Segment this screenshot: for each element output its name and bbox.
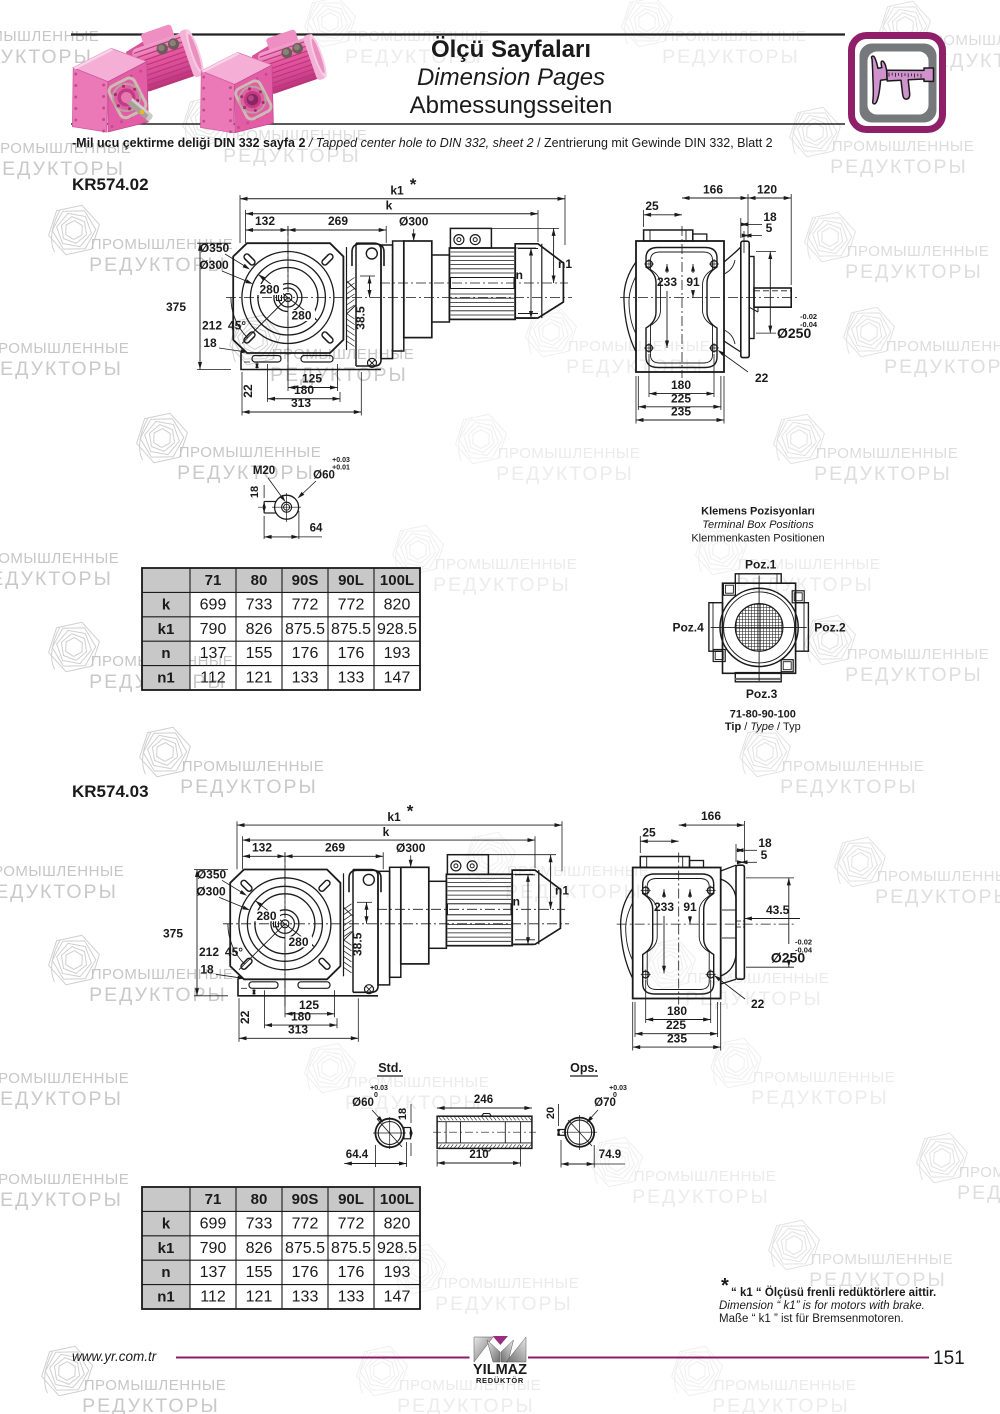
svg-text:ПРОМЫШЛЕННЫЕ: ПРОМЫШЛЕННЫЕ xyxy=(714,1377,856,1394)
svg-text:Poz.4: Poz.4 xyxy=(672,621,704,635)
svg-text:KR574.03: KR574.03 xyxy=(72,782,149,801)
svg-text:5: 5 xyxy=(766,221,773,235)
svg-text:5: 5 xyxy=(761,848,768,862)
svg-text:n1: n1 xyxy=(157,1289,175,1306)
svg-text:120: 120 xyxy=(757,183,777,197)
svg-text:РЕДУКТОРЫ: РЕДУКТОРЫ xyxy=(780,776,918,798)
svg-text:РЕДУКТОРЫ: РЕДУКТОРЫ xyxy=(0,358,123,380)
svg-text:Dimension Pages: Dimension Pages xyxy=(417,64,605,91)
svg-text:РЕДУКТОРЫ: РЕДУКТОРЫ xyxy=(435,1293,573,1315)
svg-text:Abmessungsseiten: Abmessungsseiten xyxy=(410,92,613,119)
svg-text:РЕДУКТОРЫ: РЕДУКТОРЫ xyxy=(632,1186,770,1208)
svg-text:166: 166 xyxy=(703,183,723,197)
svg-text:ПРОМЫШЛЕННЫЕ: ПРОМЫШЛЕННЫЕ xyxy=(782,758,924,775)
svg-text:Maße “ k1 ” ist für Bremsenmot: Maße “ k1 ” ist für Bremsenmotoren. xyxy=(719,1313,904,1325)
svg-text:100L: 100L xyxy=(380,572,414,589)
svg-text:18: 18 xyxy=(249,486,261,498)
svg-text:147: 147 xyxy=(384,1289,411,1306)
svg-text:n: n xyxy=(161,645,170,662)
svg-text:176: 176 xyxy=(338,1264,365,1281)
svg-text:ПРОМЫШЛЕННЫЕ: ПРОМЫШЛЕННЫЕ xyxy=(832,138,974,155)
svg-text:166: 166 xyxy=(701,809,721,823)
svg-text:43.5: 43.5 xyxy=(766,903,790,917)
svg-text:РЕДУКТОРЫ: РЕДУКТОРЫ xyxy=(0,1088,123,1110)
svg-text:РЕДУКТОРЫ: РЕДУКТОРЫ xyxy=(875,886,1000,908)
svg-text:Ø250: Ø250 xyxy=(771,950,805,966)
svg-text:РЕДУКТОРЫ: РЕДУКТОРЫ xyxy=(712,1395,850,1414)
svg-text:699: 699 xyxy=(200,1215,227,1232)
svg-text:ПРОМЫШЛЕННЫЕ: ПРОМЫШЛЕННЫЕ xyxy=(179,444,321,461)
svg-text:ПРОМЫШЛЕННЫЕ: ПРОМЫШЛЕННЫЕ xyxy=(0,1171,129,1188)
svg-text:РЕДУКТОРЫ: РЕДУКТОРЫ xyxy=(0,568,113,590)
svg-text:133: 133 xyxy=(338,1289,365,1306)
svg-text:Klemens Pozisyonları: Klemens Pozisyonları xyxy=(701,505,815,517)
svg-text:772: 772 xyxy=(292,1215,319,1232)
svg-text:193: 193 xyxy=(384,645,411,662)
svg-text:ПРОМЫШЛЕННЫЕ: ПРОМЫШЛЕННЫЕ xyxy=(437,1275,579,1292)
svg-text:ПРОМЫШЛЕННЫЕ: ПРОМЫШЛЕННЫЕ xyxy=(498,445,640,462)
svg-text:22: 22 xyxy=(755,371,769,385)
svg-text:РЕДУКТОРЫ: РЕДУКТОРЫ xyxy=(736,574,874,596)
svg-text:KR574.02: KR574.02 xyxy=(72,175,149,194)
svg-text:*: * xyxy=(721,1275,729,1297)
svg-text:90L: 90L xyxy=(338,572,364,589)
svg-text:РЕДУКТОРЫ: РЕДУКТОРЫ xyxy=(845,664,983,686)
svg-text:+0.03: +0.03 xyxy=(332,457,350,464)
svg-text:ПРОМЫШЛЕННЫЕ: ПРОМЫШЛЕННЫЕ xyxy=(0,28,99,45)
svg-text:Ø250: Ø250 xyxy=(777,325,811,341)
svg-text:+0.03: +0.03 xyxy=(370,1085,388,1092)
svg-text:Tip / Type / Typ: Tip / Type / Typ xyxy=(725,721,801,733)
svg-text:155: 155 xyxy=(246,1264,273,1281)
svg-text:Ölçü Sayfaları: Ölçü Sayfaları xyxy=(431,36,591,63)
svg-text:Poz.1: Poz.1 xyxy=(745,557,777,571)
svg-text:235: 235 xyxy=(671,405,691,419)
svg-text:Ø60: Ø60 xyxy=(352,1097,374,1109)
svg-text:РЕДУКТОРЫ: РЕДУКТОРЫ xyxy=(662,46,800,68)
svg-text:n: n xyxy=(161,1264,170,1281)
svg-text:ПРОМЫШЛЕННЫЕ: ПРОМЫШЛЕННЫЕ xyxy=(435,556,577,573)
svg-text:151: 151 xyxy=(933,1348,965,1369)
svg-text:РЕДУКТОРЫ: РЕДУКТОРЫ xyxy=(505,881,643,903)
svg-text:k1: k1 xyxy=(158,1240,175,1257)
svg-text:90S: 90S xyxy=(292,572,319,589)
svg-text:ПРОМЫШЛЕННЫЕ: ПРОМЫШЛЕННЫЕ xyxy=(0,863,124,880)
svg-text:121: 121 xyxy=(246,1289,273,1306)
svg-text:РЕДУКТОРЫ: РЕДУКТОРЫ xyxy=(830,156,968,178)
svg-text:772: 772 xyxy=(292,596,319,613)
svg-text:180: 180 xyxy=(671,378,691,392)
svg-text:875.5: 875.5 xyxy=(285,1240,325,1257)
svg-text:ПРОМЫШЛЕННЫЕ: ПРОМЫШЛЕННЫЕ xyxy=(84,1377,226,1394)
svg-text:Klemmenkasten Positionen: Klemmenkasten Positionen xyxy=(691,533,824,545)
svg-text:+0.03: +0.03 xyxy=(609,1085,627,1092)
svg-text:20: 20 xyxy=(545,1107,557,1119)
svg-text:225: 225 xyxy=(666,1018,686,1032)
svg-text:176: 176 xyxy=(338,645,365,662)
svg-text:ПРОМЫШЛЕННЫЕ: ПРОМЫШЛЕННЫЕ xyxy=(347,1074,489,1091)
svg-text:ПРОМЫШЛЕННЫЕ: ПРОМЫШЛЕННЫЕ xyxy=(847,646,989,663)
svg-text:112: 112 xyxy=(200,670,226,687)
svg-text:176: 176 xyxy=(292,1264,319,1281)
svg-text:Terminal Box Positions: Terminal Box Positions xyxy=(702,519,814,531)
svg-text:71: 71 xyxy=(205,572,222,589)
svg-text:ПРОМЫШЛЕННЫЕ: ПРОМЫШЛЕННЫЕ xyxy=(816,445,958,462)
svg-text:ПРОМЫШЛЕННЫЕ: ПРОМЫШЛЕННЫЕ xyxy=(634,1168,776,1185)
svg-text:25: 25 xyxy=(645,199,659,213)
svg-text:k: k xyxy=(162,596,171,613)
svg-text:699: 699 xyxy=(200,596,227,613)
svg-text:РЕДУКТОРЫ: РЕДУКТОРЫ xyxy=(0,881,118,903)
svg-text:РЕДУКТОРЫ: РЕДУКТОРЫ xyxy=(0,1189,123,1211)
svg-text:18: 18 xyxy=(397,1108,409,1120)
svg-text:820: 820 xyxy=(384,596,411,613)
svg-text:71: 71 xyxy=(205,1191,222,1208)
svg-text:180: 180 xyxy=(667,1004,687,1018)
svg-text:233: 233 xyxy=(657,275,677,289)
svg-text:790: 790 xyxy=(200,621,227,638)
svg-text:225: 225 xyxy=(671,392,691,406)
svg-text:790: 790 xyxy=(200,1240,227,1257)
svg-text:ПРОМЫШЛЕННЫЕ: ПРОМЫШЛЕННЫЕ xyxy=(0,1070,129,1087)
svg-text:112: 112 xyxy=(200,1289,226,1306)
svg-text:176: 176 xyxy=(292,645,319,662)
svg-text:137: 137 xyxy=(200,645,227,662)
svg-text:ПРОМЫШЛЕННЫЕ: ПРОМЫШЛЕННЫЕ xyxy=(959,1164,1000,1181)
svg-text:www.yr.com.tr: www.yr.com.tr xyxy=(72,1349,157,1364)
svg-text:772: 772 xyxy=(338,596,365,613)
svg-text:ПРОМЫШЛЕННЫЕ: ПРОМЫШЛЕННЫЕ xyxy=(0,550,119,567)
svg-text:133: 133 xyxy=(292,1289,319,1306)
svg-text:64.4: 64.4 xyxy=(346,1149,369,1161)
svg-text:РЕДУКТОРЫ: РЕДУКТОРЫ xyxy=(751,1087,889,1109)
svg-text:733: 733 xyxy=(246,596,273,613)
svg-text:M20: M20 xyxy=(253,465,275,477)
svg-text:РЕДУКТОРЫ: РЕДУКТОРЫ xyxy=(814,463,952,485)
svg-text:928.5: 928.5 xyxy=(377,1240,417,1257)
svg-text:233: 233 xyxy=(654,900,674,914)
svg-text:22: 22 xyxy=(751,997,765,1011)
svg-text:875.5: 875.5 xyxy=(331,1240,371,1257)
svg-text:РЕДУКТОРЫ: РЕДУКТОРЫ xyxy=(180,776,318,798)
svg-text:РЕДУКТОРЫ: РЕДУКТОРЫ xyxy=(957,1182,1000,1204)
svg-text:820: 820 xyxy=(384,1215,411,1232)
svg-text:k: k xyxy=(162,1215,171,1232)
svg-text:ПРОМЫШЛЕННЫЕ: ПРОМЫШЛЕННЫЕ xyxy=(847,243,989,260)
svg-text:91: 91 xyxy=(686,275,700,289)
svg-text:Poz.2: Poz.2 xyxy=(814,621,846,635)
svg-text:РЕДУКТОРЫ: РЕДУКТОРЫ xyxy=(177,462,315,484)
svg-text:ПРОМЫШЛЕННЫЕ: ПРОМЫШЛЕННЫЕ xyxy=(753,1069,895,1086)
svg-text:100L: 100L xyxy=(380,1191,414,1208)
svg-text:ПРОМЫШЛЕННЫЕ: ПРОМЫШЛЕННЫЕ xyxy=(182,758,324,775)
svg-text:ПРОМЫШЛЕННЫЕ: ПРОМЫШЛЕННЫЕ xyxy=(664,28,806,45)
svg-text:772: 772 xyxy=(338,1215,365,1232)
svg-text:РЕДУКТОРЫ: РЕДУКТОРЫ xyxy=(89,984,227,1006)
svg-text:826: 826 xyxy=(246,621,273,638)
svg-text:826: 826 xyxy=(246,1240,273,1257)
svg-text:133: 133 xyxy=(338,670,365,687)
svg-text:РЕДУКТОРЫ: РЕДУКТОРЫ xyxy=(397,1395,535,1414)
svg-text:235: 235 xyxy=(667,1032,687,1046)
svg-text:РЕДУКТОРЫ: РЕДУКТОРЫ xyxy=(884,356,1000,378)
svg-text:875.5: 875.5 xyxy=(285,621,325,638)
svg-text:875.5: 875.5 xyxy=(331,621,371,638)
svg-text:Ops.: Ops. xyxy=(570,1061,598,1075)
svg-text:155: 155 xyxy=(246,645,273,662)
svg-text:80: 80 xyxy=(251,572,268,589)
svg-text:РЕДУКТОРЫ: РЕДУКТОРЫ xyxy=(82,1395,220,1414)
svg-text:733: 733 xyxy=(246,1215,273,1232)
svg-text:Poz.3: Poz.3 xyxy=(746,687,778,701)
svg-text:91: 91 xyxy=(683,900,697,914)
svg-text:193: 193 xyxy=(384,1264,411,1281)
svg-text:80: 80 xyxy=(251,1191,268,1208)
svg-text:Ø60: Ø60 xyxy=(313,470,335,482)
svg-text:71-80-90-100: 71-80-90-100 xyxy=(730,709,796,721)
svg-text:210: 210 xyxy=(469,1149,488,1161)
svg-text:Std.: Std. xyxy=(378,1061,402,1075)
svg-text:Dimension “ k1” is for motors: Dimension “ k1” is for motors with brake… xyxy=(719,1300,925,1312)
svg-text:ПРОМЫШЛЕННЫЕ: ПРОМЫШЛЕННЫЕ xyxy=(0,340,129,357)
svg-text:25: 25 xyxy=(642,826,656,840)
svg-text:137: 137 xyxy=(200,1264,227,1281)
svg-text:90L: 90L xyxy=(338,1191,364,1208)
svg-text:Ø70: Ø70 xyxy=(594,1097,616,1109)
svg-text:64: 64 xyxy=(310,523,323,535)
svg-text:ПРОМЫШЛЕННЫЕ: ПРОМЫШЛЕННЫЕ xyxy=(568,338,710,355)
svg-text:90S: 90S xyxy=(292,1191,319,1208)
svg-text:ПРОМЫШЛЕННЫЕ: ПРОМЫШЛЕННЫЕ xyxy=(811,1251,953,1268)
svg-text:ПРОМЫШЛЕННЫЕ: ПРОМЫШЛЕННЫЕ xyxy=(877,868,1000,885)
svg-text:ПРОМЫШЛЕННЫЕ: ПРОМЫШЛЕННЫЕ xyxy=(886,338,1000,355)
svg-text:k1: k1 xyxy=(158,621,175,638)
svg-text:133: 133 xyxy=(292,670,319,687)
svg-text:-Mil ucu çektirme deliği DIN 3: -Mil ucu çektirme deliği DIN 332 sayfa 2… xyxy=(72,136,773,150)
svg-text:74.9: 74.9 xyxy=(599,1149,621,1161)
svg-text:РЕДУКТОРЫ: РЕДУКТОРЫ xyxy=(496,463,634,485)
svg-text:РЕДУКТОРЫ: РЕДУКТОРЫ xyxy=(433,574,571,596)
svg-text:928.5: 928.5 xyxy=(377,621,417,638)
svg-text:РЕДУКТОРЫ: РЕДУКТОРЫ xyxy=(845,261,983,283)
svg-text:РЕДУКТОРЫ: РЕДУКТОРЫ xyxy=(270,364,408,386)
svg-text:0: 0 xyxy=(374,1092,378,1099)
svg-text:REDÜKTÖR: REDÜKTÖR xyxy=(476,1376,524,1385)
svg-text:n1: n1 xyxy=(157,670,175,687)
svg-text:147: 147 xyxy=(384,670,411,687)
svg-text:“ k1 “ Ölçüsü frenli redüktörl: “ k1 “ Ölçüsü frenli redüktörlere aittir… xyxy=(731,1286,936,1299)
svg-text:121: 121 xyxy=(246,670,273,687)
svg-text:246: 246 xyxy=(474,1094,493,1106)
